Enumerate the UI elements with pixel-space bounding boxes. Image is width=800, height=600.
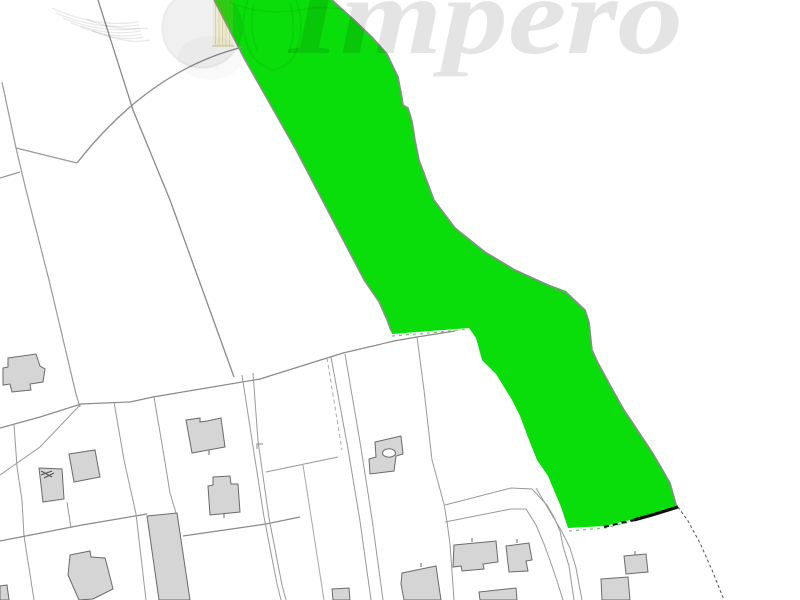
svg-text:Impero: Impero (287, 0, 683, 77)
